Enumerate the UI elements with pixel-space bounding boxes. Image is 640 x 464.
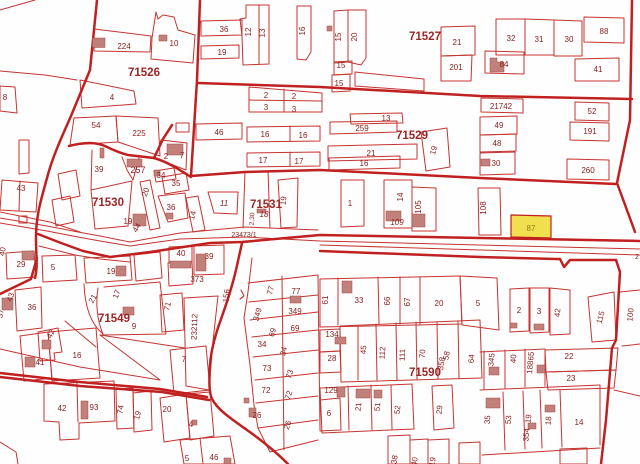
svg-text:373: 373: [190, 275, 204, 284]
svg-text:21: 21: [453, 38, 462, 47]
svg-text:232112: 232112: [190, 313, 200, 340]
svg-text:28: 28: [328, 354, 337, 363]
svg-text:53: 53: [504, 414, 514, 424]
svg-text:13: 13: [258, 28, 267, 37]
svg-text:29: 29: [435, 404, 445, 414]
svg-text:14: 14: [396, 192, 405, 201]
svg-text:8: 8: [3, 93, 8, 102]
svg-text:46: 46: [210, 453, 219, 462]
svg-text:71529: 71529: [396, 130, 428, 142]
svg-text:61: 61: [321, 295, 330, 304]
svg-text:15: 15: [337, 61, 346, 70]
svg-text:3: 3: [264, 103, 269, 112]
svg-text:111: 111: [398, 348, 407, 361]
svg-text:17: 17: [295, 157, 304, 166]
svg-text:77: 77: [292, 287, 301, 296]
svg-text:40: 40: [177, 249, 186, 258]
svg-text:49: 49: [495, 121, 504, 130]
svg-text:20: 20: [435, 299, 444, 308]
svg-text:43: 43: [17, 184, 26, 193]
svg-text:5: 5: [185, 454, 190, 463]
svg-text:71590: 71590: [409, 367, 441, 379]
svg-text:51: 51: [373, 401, 383, 411]
svg-text:20: 20: [163, 405, 172, 414]
svg-text:100: 100: [625, 307, 635, 322]
svg-text:39: 39: [95, 165, 104, 174]
svg-text:225: 225: [132, 129, 146, 138]
svg-text:349: 349: [288, 307, 302, 316]
svg-text:36: 36: [167, 203, 176, 212]
svg-text:6: 6: [327, 409, 332, 418]
svg-text:19: 19: [107, 267, 116, 276]
svg-text:48: 48: [493, 139, 502, 148]
svg-text:19: 19: [124, 217, 133, 226]
svg-text:93: 93: [90, 403, 99, 412]
svg-text:2: 2: [635, 254, 639, 261]
svg-text:20: 20: [350, 32, 359, 41]
svg-text:42: 42: [553, 307, 563, 317]
svg-text:260: 260: [581, 166, 595, 175]
svg-text:3: 3: [292, 105, 297, 114]
svg-text:71526: 71526: [128, 67, 160, 79]
svg-text:30: 30: [565, 35, 574, 44]
svg-text:41: 41: [36, 358, 45, 367]
svg-text:41: 41: [594, 65, 603, 74]
svg-text:19: 19: [524, 413, 534, 423]
svg-text:12: 12: [244, 27, 253, 36]
svg-text:29: 29: [17, 260, 26, 269]
svg-text:69: 69: [291, 324, 300, 333]
svg-text:9: 9: [132, 322, 137, 331]
svg-text:134: 134: [325, 330, 339, 339]
svg-text:36: 36: [28, 303, 37, 312]
svg-text:23: 23: [567, 374, 576, 383]
svg-text:64: 64: [467, 353, 477, 363]
svg-text:72: 72: [262, 386, 271, 395]
svg-text:33: 33: [355, 296, 364, 305]
svg-text:42: 42: [58, 404, 67, 413]
svg-text:1: 1: [348, 199, 353, 208]
svg-text:3: 3: [537, 307, 542, 316]
svg-text:257: 257: [130, 165, 145, 175]
svg-text:71530: 71530: [92, 197, 124, 209]
svg-text:88: 88: [600, 27, 609, 36]
svg-text:16: 16: [298, 26, 307, 35]
svg-text:201: 201: [449, 63, 463, 72]
svg-text:191: 191: [583, 127, 597, 136]
svg-text:345: 345: [486, 352, 496, 367]
svg-text:17: 17: [259, 156, 268, 165]
svg-text:40: 40: [509, 353, 519, 363]
svg-text:2: 2: [517, 306, 522, 315]
svg-text:4: 4: [189, 420, 194, 429]
svg-text:13: 13: [382, 114, 391, 123]
svg-text:129: 129: [324, 386, 338, 395]
svg-text:73: 73: [263, 364, 272, 373]
svg-text:21742: 21742: [490, 102, 513, 111]
svg-text:67: 67: [403, 297, 412, 306]
svg-text:2: 2: [292, 92, 297, 101]
svg-text:46: 46: [215, 128, 224, 137]
svg-text:224: 224: [117, 42, 131, 51]
svg-text:16: 16: [360, 159, 369, 168]
svg-text:18: 18: [260, 210, 269, 219]
svg-text:15: 15: [335, 79, 344, 88]
svg-text:34: 34: [258, 340, 267, 349]
svg-text:18: 18: [544, 415, 554, 425]
svg-text:87: 87: [527, 224, 536, 233]
svg-text:105: 105: [414, 200, 423, 214]
svg-text:66: 66: [383, 296, 392, 305]
svg-text:10: 10: [170, 39, 179, 48]
svg-text:21: 21: [367, 149, 376, 158]
svg-text:39: 39: [205, 252, 214, 261]
svg-text:2: 2: [264, 91, 269, 100]
svg-text:11: 11: [220, 199, 228, 208]
svg-text:70: 70: [418, 348, 428, 358]
svg-text:35: 35: [172, 179, 181, 188]
svg-text:84: 84: [500, 60, 509, 69]
svg-text:5: 5: [476, 299, 481, 308]
svg-text:22: 22: [565, 352, 574, 361]
svg-text:21: 21: [354, 401, 364, 411]
svg-text:52: 52: [588, 107, 597, 116]
svg-text:7: 7: [180, 151, 185, 160]
svg-text:259: 259: [355, 124, 369, 133]
svg-text:32: 32: [507, 34, 516, 43]
svg-text:23473/1: 23473/1: [231, 232, 256, 239]
svg-text:35: 35: [483, 414, 493, 424]
svg-text:19: 19: [218, 48, 227, 57]
svg-text:2: 2: [164, 152, 169, 161]
svg-text:30: 30: [492, 159, 501, 168]
svg-text:109: 109: [390, 218, 404, 227]
svg-text:354: 354: [521, 427, 531, 442]
svg-text:15: 15: [334, 32, 343, 41]
svg-text:16: 16: [299, 131, 308, 140]
svg-text:16: 16: [261, 130, 270, 139]
svg-text:16: 16: [73, 351, 82, 360]
svg-text:34: 34: [157, 171, 166, 180]
svg-text:7: 7: [182, 355, 187, 364]
svg-text:36: 36: [220, 25, 229, 34]
svg-text:71531: 71531: [250, 199, 283, 211]
svg-text:54: 54: [92, 121, 101, 130]
svg-text:14: 14: [575, 418, 584, 427]
svg-text:26: 26: [253, 411, 262, 420]
svg-text:31: 31: [535, 35, 544, 44]
svg-text:4: 4: [110, 93, 115, 102]
svg-text:71527: 71527: [409, 31, 441, 43]
svg-text:156: 156: [221, 288, 231, 303]
svg-text:45: 45: [359, 344, 369, 354]
svg-text:112: 112: [378, 346, 388, 360]
svg-text:2,30: 2,30: [249, 212, 257, 225]
svg-text:71549: 71549: [98, 313, 130, 325]
svg-text:52: 52: [393, 404, 403, 414]
svg-text:5: 5: [51, 263, 56, 272]
svg-text:108: 108: [479, 201, 488, 215]
